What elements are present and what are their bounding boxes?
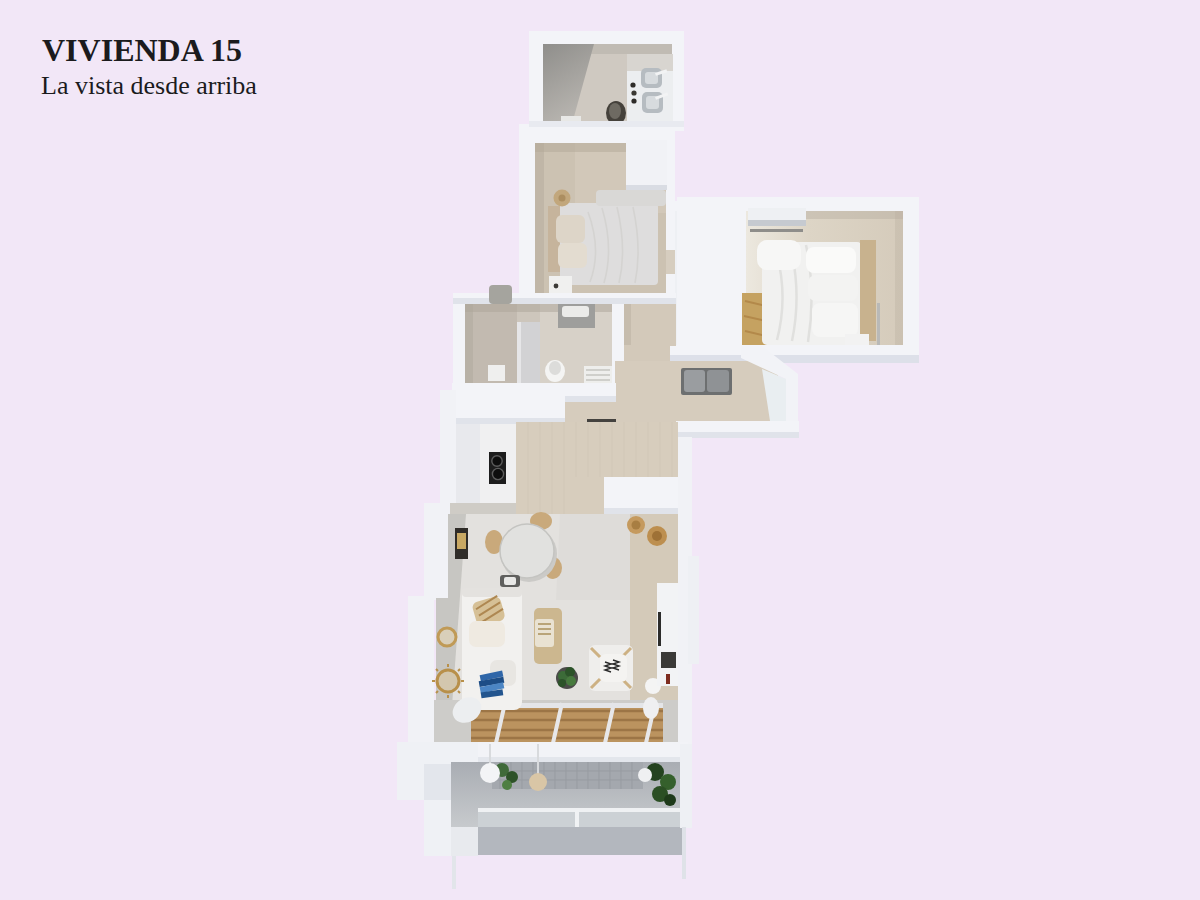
svg-text:VIVIENDA 15: VIVIENDA 15	[42, 32, 242, 68]
svg-text:La vista desde arriba: La vista desde arriba	[41, 71, 257, 100]
